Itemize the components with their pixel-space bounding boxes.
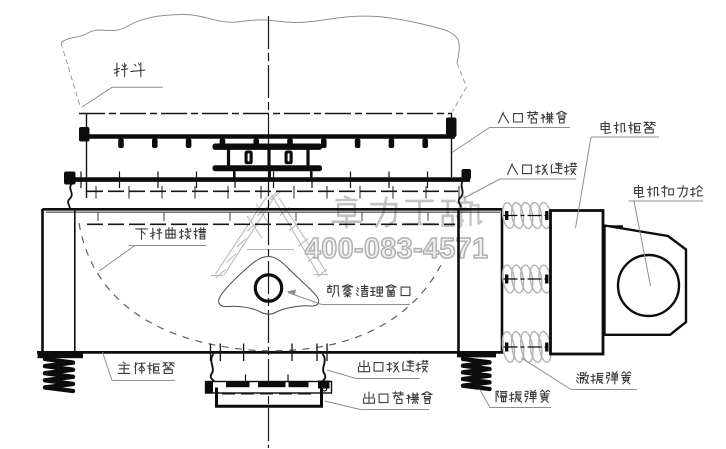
svg-text:400-083-4571: 400-083-4571 <box>305 233 489 265</box>
